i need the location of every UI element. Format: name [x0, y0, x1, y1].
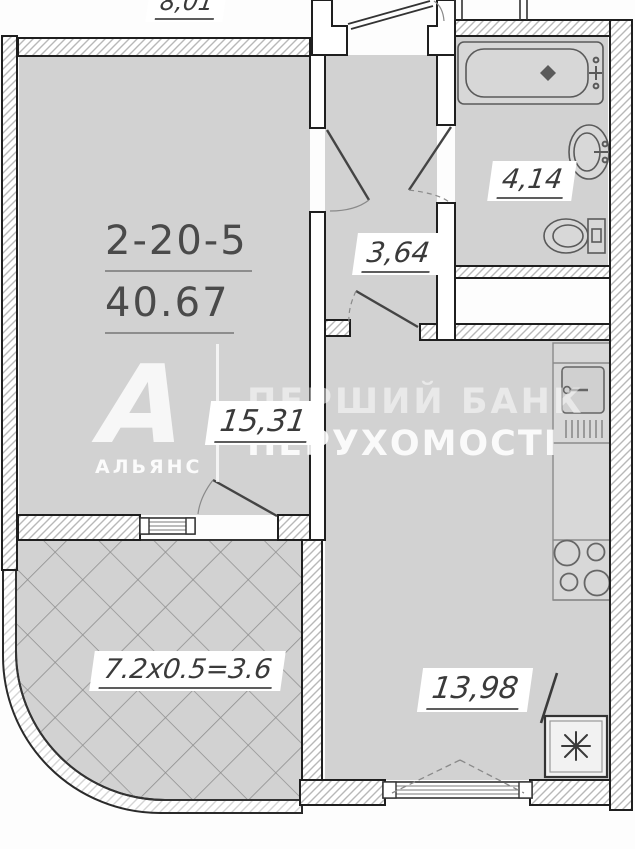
wall-hall-right-lower [437, 203, 455, 340]
window-balcony [140, 518, 195, 534]
duct-shaft-lines [455, 0, 527, 20]
wall-outer-left [2, 36, 17, 570]
label-hall-area: 3,64 [352, 233, 444, 275]
toilet [544, 219, 605, 253]
hallway-floor [325, 55, 437, 340]
wall-living-top [18, 38, 312, 56]
wall-kitchen-west [302, 540, 322, 780]
label-adjacent-area: 8,01 [145, 0, 228, 22]
wall-kitchen-bottom-right [530, 780, 610, 805]
wall-bathroom-bottom [440, 266, 610, 278]
apartment-title: 2-20-5 40.67 [105, 218, 252, 342]
snowflake-icon [562, 732, 590, 760]
entrance-jamb-right [428, 0, 455, 55]
apartment-number: 2-20-5 [105, 218, 252, 272]
floor-plan: А АЛЬЯНС ПЕРШИЙ БАНК НЕРУХОМОСТІ 2-20-5 … [0, 0, 635, 849]
label-kitchen-area: 13,98 [417, 668, 533, 712]
label-bathroom-area: 4,14 [487, 161, 577, 201]
label-living-area: 15,31 [205, 401, 321, 445]
apartment-total-area: 40.67 [105, 280, 234, 334]
bathtub [458, 42, 603, 104]
wall-living-bottom-left [18, 515, 140, 540]
wall-kitchen-bottom-left [300, 780, 385, 805]
door-entrance [348, 1, 444, 29]
label-balcony-calc: 7.2x0.5=3.6 [89, 651, 286, 691]
wall-bathroom-top [443, 20, 610, 36]
wall-outer-right [610, 20, 632, 810]
wall-kitchen-top-stub [322, 320, 350, 336]
wall-hall-left-lower [310, 212, 325, 540]
entrance-jamb-left [312, 0, 347, 55]
